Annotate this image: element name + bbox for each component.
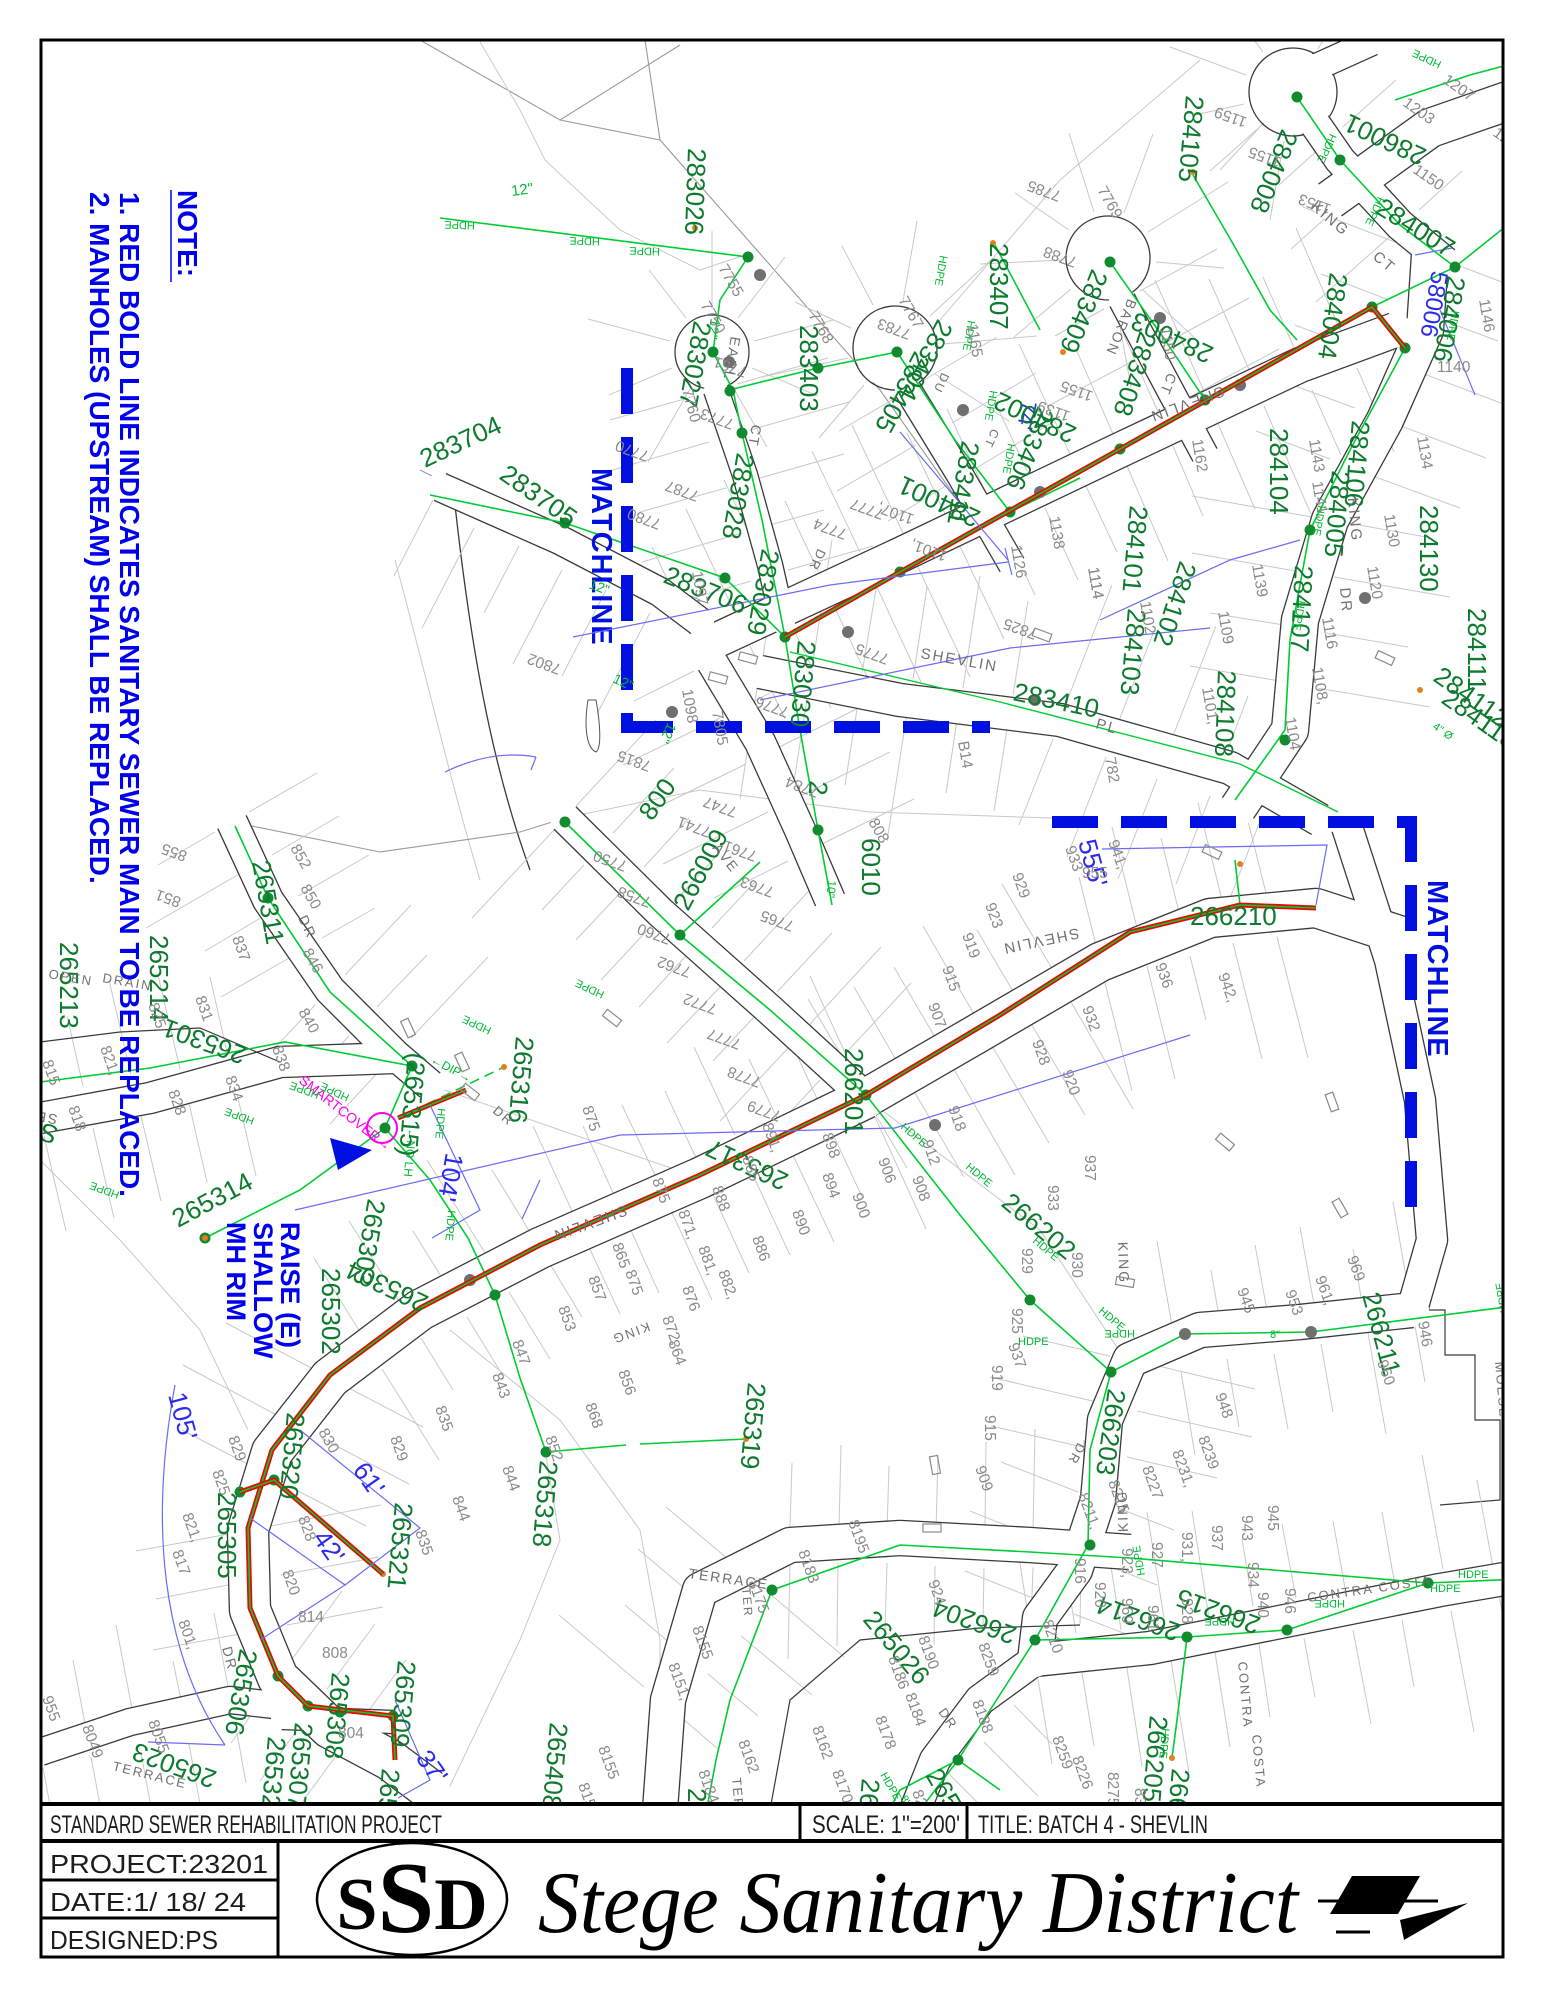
svg-text:919: 919: [988, 1365, 1005, 1391]
svg-text:915: 915: [981, 1415, 998, 1441]
svg-text:NOTE:: NOTE:: [172, 190, 203, 277]
svg-text:266210: 266210: [1190, 901, 1277, 931]
svg-text:283407: 283407: [984, 243, 1014, 330]
svg-text:MH RIM: MH RIM: [221, 1222, 251, 1321]
svg-text:1. RED BOLD LINE INDICATES SAN: 1. RED BOLD LINE INDICATES SANITARY SEWE…: [114, 192, 145, 1197]
svg-text:925: 925: [1008, 1308, 1025, 1334]
svg-text:MATCHLINE: MATCHLINE: [1421, 880, 1453, 1058]
svg-text:HDPE: HDPE: [444, 218, 475, 231]
svg-text:265302: 265302: [316, 1268, 346, 1355]
svg-text:808: 808: [322, 1645, 348, 1662]
svg-text:DATE:1/ 18/ 24: DATE:1/ 18/ 24: [50, 1887, 246, 1917]
svg-text:SCALE: 1''=200': SCALE: 1''=200': [812, 1811, 960, 1839]
svg-text:969: 969: [1118, 1598, 1135, 1624]
svg-text:930: 930: [1068, 1252, 1085, 1278]
svg-text:DR: DR: [1336, 587, 1355, 614]
svg-text:283026: 283026: [679, 148, 712, 236]
svg-text:961: 961: [1144, 1605, 1161, 1631]
svg-text:1140: 1140: [1437, 359, 1471, 376]
svg-text:STANDARD SEWER REHABILITATION: STANDARD SEWER REHABILITATION PROJECT: [50, 1811, 442, 1839]
svg-text:934: 934: [1244, 1562, 1261, 1588]
svg-text:HDPE: HDPE: [569, 234, 600, 247]
svg-text:937: 937: [1081, 1155, 1098, 1181]
svg-text:HDPE: HDPE: [1104, 1327, 1135, 1339]
svg-text:955: 955: [1082, 865, 1108, 882]
svg-text:KING: KING: [1114, 1490, 1131, 1533]
svg-text:HDPE: HDPE: [1204, 1615, 1235, 1627]
svg-text:HDPE: HDPE: [1458, 1569, 1489, 1581]
svg-text:8275: 8275: [1104, 1772, 1121, 1806]
svg-text:8": 8": [1270, 1329, 1280, 1341]
svg-text:DESIGNED:PS: DESIGNED:PS: [50, 1925, 218, 1955]
svg-text:929: 929: [1018, 1248, 1035, 1274]
svg-text:12": 12": [510, 180, 534, 200]
svg-text:265305: 265305: [212, 1492, 242, 1579]
svg-text:940: 940: [1254, 1592, 1271, 1618]
svg-text:933: 933: [1044, 1185, 1061, 1211]
svg-text:920: 920: [1091, 1582, 1108, 1608]
svg-text:266201: 266201: [839, 1048, 869, 1135]
svg-text:10": 10": [823, 880, 838, 899]
svg-text:931,: 931,: [1178, 1532, 1195, 1562]
svg-text:814: 814: [298, 1609, 324, 1626]
svg-text:HDPE: HDPE: [1430, 1583, 1461, 1595]
svg-text:923,: 923,: [1118, 1548, 1135, 1578]
svg-text:943: 943: [1238, 1515, 1255, 1541]
svg-text:6010: 6010: [856, 838, 886, 896]
svg-text:284104: 284104: [1264, 428, 1294, 515]
svg-text:804: 804: [338, 1725, 364, 1742]
svg-text:945: 945: [1264, 1505, 1281, 1531]
svg-text:SHALLOW: SHALLOW: [248, 1222, 278, 1359]
svg-text:TER: TER: [739, 1587, 756, 1618]
svg-text:946: 946: [1281, 1588, 1298, 1614]
svg-text:Stege Sanitary District: Stege Sanitary District: [538, 1855, 1300, 1952]
svg-text:MATCHLINE: MATCHLINE: [585, 468, 617, 646]
svg-text:927: 927: [1148, 1542, 1165, 1568]
svg-text:937: 937: [1208, 1525, 1225, 1551]
svg-text:PROJECT:23201: PROJECT:23201: [50, 1849, 268, 1879]
svg-text:RAISE (E): RAISE (E): [275, 1222, 305, 1348]
svg-text:TITLE: BATCH 4 - SHEVLIN: TITLE: BATCH 4 - SHEVLIN: [978, 1811, 1208, 1839]
svg-text:284130: 284130: [1414, 505, 1444, 592]
svg-text:916: 916: [1071, 1558, 1088, 1584]
svg-text:HDPE: HDPE: [629, 244, 660, 257]
svg-text:928: 928: [1178, 1598, 1195, 1624]
svg-text:2. MANHOLES (UPSTREAM) SHALL B: 2. MANHOLES (UPSTREAM) SHALL BE REPLACED…: [84, 192, 115, 884]
